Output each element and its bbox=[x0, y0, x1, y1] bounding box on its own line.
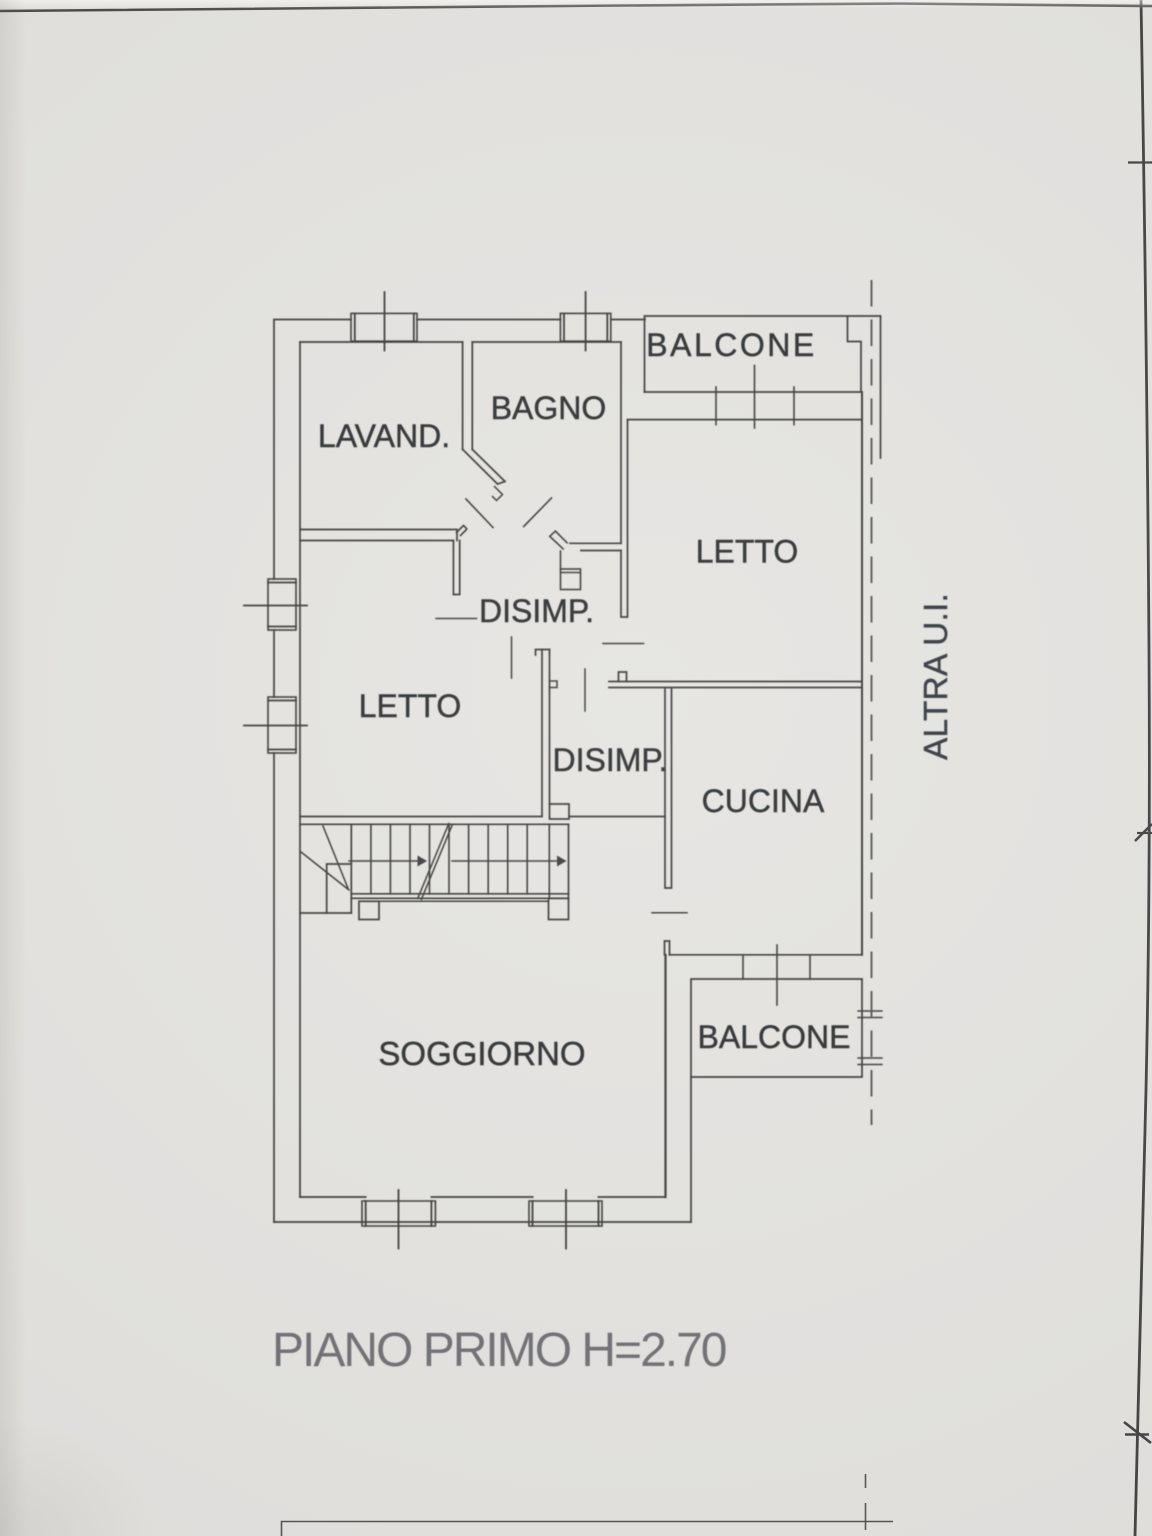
svg-text:DISIMP.: DISIMP. bbox=[553, 742, 668, 778]
svg-text:BALCONE: BALCONE bbox=[646, 327, 816, 363]
svg-text:LAVAND.: LAVAND. bbox=[318, 418, 450, 454]
svg-text:BAGNO: BAGNO bbox=[491, 390, 607, 426]
svg-text:BALCONE: BALCONE bbox=[698, 1019, 851, 1055]
svg-text:CUCINA: CUCINA bbox=[702, 783, 825, 819]
svg-text:LETTO: LETTO bbox=[696, 534, 799, 570]
svg-text:DISIMP.: DISIMP. bbox=[479, 593, 594, 629]
svg-text:LETTO: LETTO bbox=[359, 688, 462, 724]
svg-text:PIANO PRIMO H=2.70: PIANO PRIMO H=2.70 bbox=[272, 1324, 726, 1377]
svg-text:SOGGIORNO: SOGGIORNO bbox=[378, 1035, 585, 1072]
svg-text:ALTRA U.I.: ALTRA U.I. bbox=[918, 593, 955, 760]
